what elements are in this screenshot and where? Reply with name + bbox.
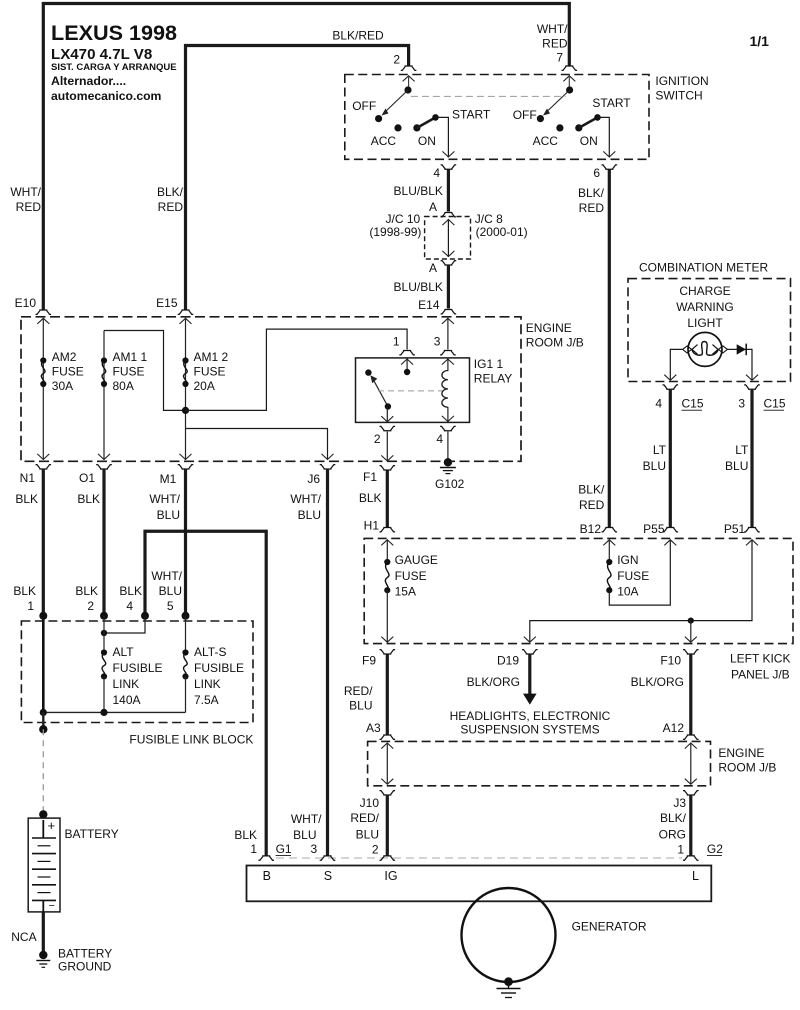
svg-text:GAUGE: GAUGE: [395, 553, 438, 567]
svg-text:J3: J3: [673, 796, 686, 810]
svg-text:80A: 80A: [113, 379, 134, 393]
svg-text:FUSE: FUSE: [395, 569, 427, 583]
svg-text:E10: E10: [15, 296, 37, 310]
svg-text:SWITCH: SWITCH: [655, 89, 702, 103]
svg-text:GENERATOR: GENERATOR: [572, 920, 647, 934]
svg-text:30A: 30A: [52, 379, 73, 393]
svg-text:BLK: BLK: [75, 584, 98, 598]
svg-text:J/C 10: J/C 10: [386, 212, 421, 226]
svg-text:J10: J10: [360, 796, 380, 810]
svg-text:P55: P55: [643, 522, 665, 536]
svg-text:ROOM J/B: ROOM J/B: [718, 761, 776, 775]
svg-text:P51: P51: [724, 522, 746, 536]
svg-text:S: S: [324, 869, 332, 883]
svg-text:A3: A3: [366, 721, 381, 735]
svg-text:4: 4: [433, 166, 440, 180]
svg-text:BLK/: BLK/: [578, 186, 605, 200]
svg-text:WHT/: WHT/: [10, 185, 41, 199]
svg-text:2: 2: [87, 599, 94, 613]
svg-text:NCA: NCA: [11, 930, 36, 944]
svg-text:WHT/: WHT/: [149, 492, 180, 506]
svg-text:1: 1: [27, 599, 34, 613]
svg-text:O1: O1: [79, 471, 95, 485]
svg-text:RED: RED: [16, 200, 42, 214]
svg-text:BATTERY: BATTERY: [65, 827, 119, 841]
svg-text:WARNING: WARNING: [676, 300, 734, 314]
svg-text:BATTERY: BATTERY: [58, 947, 112, 961]
svg-text:SIST. CARGA Y ARRANQUE: SIST. CARGA Y ARRANQUE: [51, 62, 177, 73]
svg-text:1: 1: [677, 843, 684, 857]
svg-text:OFF: OFF: [352, 99, 376, 113]
svg-text:RED: RED: [542, 37, 568, 51]
svg-text:+: +: [48, 818, 56, 833]
svg-text:BLU: BLU: [298, 508, 321, 522]
svg-text:RED: RED: [158, 200, 184, 214]
svg-text:AM1 2: AM1 2: [194, 350, 229, 364]
svg-text:WHT/: WHT/: [151, 569, 182, 583]
svg-text:HEADLIGHTS, ELECTRONIC: HEADLIGHTS, ELECTRONIC: [450, 709, 611, 723]
svg-text:IGN: IGN: [617, 553, 638, 567]
svg-text:ACC: ACC: [371, 134, 397, 148]
svg-text:RED/: RED/: [350, 811, 379, 825]
svg-text:A: A: [429, 261, 437, 275]
svg-text:WHT/: WHT/: [290, 492, 321, 506]
svg-text:IGNITION: IGNITION: [655, 74, 708, 88]
svg-text:1/1: 1/1: [750, 33, 770, 49]
svg-text:PANEL J/B: PANEL J/B: [731, 668, 790, 682]
svg-text:BLU: BLU: [159, 584, 182, 598]
svg-text:ON: ON: [580, 134, 598, 148]
svg-text:A: A: [429, 200, 437, 214]
svg-text:C15: C15: [682, 397, 704, 411]
svg-text:G1: G1: [276, 842, 292, 856]
svg-text:BLK/: BLK/: [660, 811, 687, 825]
svg-text:(2000-01): (2000-01): [476, 225, 528, 239]
svg-text:RED: RED: [579, 498, 605, 512]
svg-text:B12: B12: [580, 522, 602, 536]
svg-text:LEXUS 1998: LEXUS 1998: [51, 20, 177, 45]
svg-text:FUSIBLE: FUSIBLE: [194, 661, 244, 675]
svg-text:GROUND: GROUND: [58, 960, 112, 974]
svg-text:F10: F10: [660, 654, 681, 668]
svg-text:RELAY: RELAY: [474, 372, 512, 386]
svg-text:4: 4: [436, 432, 443, 446]
svg-text:3: 3: [311, 842, 318, 856]
svg-text:N1: N1: [20, 471, 36, 485]
svg-text:G2: G2: [707, 842, 723, 856]
svg-text:4: 4: [126, 599, 133, 613]
svg-text:2: 2: [372, 843, 379, 857]
svg-text:LT: LT: [735, 443, 749, 457]
svg-text:7.5A: 7.5A: [194, 693, 219, 707]
svg-text:E15: E15: [156, 296, 178, 310]
svg-text:BLU: BLU: [725, 459, 748, 473]
svg-text:2: 2: [374, 432, 381, 446]
svg-text:J/C 8: J/C 8: [475, 212, 503, 226]
svg-text:C15: C15: [764, 397, 786, 411]
svg-text:START: START: [592, 96, 631, 110]
svg-text:E14: E14: [418, 298, 440, 312]
svg-text:6: 6: [593, 166, 600, 180]
svg-text:WHT/: WHT/: [537, 22, 568, 36]
svg-text:LINK: LINK: [113, 677, 140, 691]
svg-text:L: L: [692, 869, 699, 883]
svg-text:1: 1: [393, 335, 400, 349]
svg-text:D19: D19: [497, 654, 519, 668]
svg-text:J6: J6: [307, 472, 320, 486]
svg-text:automecanico.com: automecanico.com: [51, 89, 162, 103]
svg-text:FUSE: FUSE: [617, 569, 649, 583]
svg-text:COMBINATION METER: COMBINATION METER: [639, 261, 768, 275]
svg-text:10A: 10A: [617, 585, 638, 599]
svg-text:LINK: LINK: [194, 677, 221, 691]
svg-text:FUSE: FUSE: [113, 365, 145, 379]
svg-text:140A: 140A: [113, 693, 141, 707]
svg-text:BLU: BLU: [349, 699, 372, 713]
svg-text:FUSE: FUSE: [52, 365, 84, 379]
svg-text:BLK: BLK: [15, 492, 38, 506]
svg-text:BLU: BLU: [157, 508, 180, 522]
svg-text:BLK: BLK: [234, 828, 257, 842]
svg-text:FUSE: FUSE: [194, 365, 226, 379]
svg-text:G102: G102: [435, 477, 465, 491]
svg-text:BLU: BLU: [356, 828, 379, 842]
svg-text:H1: H1: [364, 519, 380, 533]
svg-text:A12: A12: [663, 721, 685, 735]
svg-text:LIGHT: LIGHT: [687, 316, 723, 330]
svg-text:BLU: BLU: [643, 459, 666, 473]
svg-text:ENGINE: ENGINE: [526, 321, 572, 335]
svg-text:BLK/RED: BLK/RED: [332, 29, 384, 43]
svg-text:15A: 15A: [395, 585, 416, 599]
svg-text:M1: M1: [160, 472, 177, 486]
svg-text:OFF: OFF: [513, 108, 537, 122]
svg-text:7: 7: [556, 51, 563, 65]
svg-text:RED/: RED/: [344, 684, 373, 698]
svg-text:CHARGE: CHARGE: [679, 284, 730, 298]
svg-text:ENGINE: ENGINE: [718, 746, 764, 760]
svg-text:START: START: [452, 108, 491, 122]
svg-text:LT: LT: [653, 443, 667, 457]
svg-text:AM1 1: AM1 1: [113, 350, 148, 364]
svg-text:BLU: BLU: [293, 828, 316, 842]
svg-text:4: 4: [655, 397, 662, 411]
svg-text:ACC: ACC: [533, 134, 559, 148]
svg-text:BLK/: BLK/: [157, 185, 184, 199]
svg-text:ON: ON: [418, 134, 436, 148]
svg-text:BLU/BLK: BLU/BLK: [394, 280, 443, 294]
svg-text:3: 3: [738, 397, 745, 411]
svg-text:ALT-S: ALT-S: [194, 645, 226, 659]
svg-text:F1: F1: [363, 470, 377, 484]
svg-text:BLK: BLK: [119, 584, 142, 598]
svg-text:SUSPENSION SYSTEMS: SUSPENSION SYSTEMS: [460, 723, 599, 737]
svg-text:BLK/ORG: BLK/ORG: [631, 675, 684, 689]
svg-text:LX470 4.7L V8: LX470 4.7L V8: [51, 46, 152, 63]
svg-text:IG1 1: IG1 1: [474, 357, 504, 371]
svg-text:BLK: BLK: [359, 491, 382, 505]
svg-text:ORG: ORG: [659, 828, 686, 842]
svg-text:3: 3: [434, 335, 441, 349]
svg-text:AM2: AM2: [52, 350, 77, 364]
svg-text:1: 1: [250, 842, 257, 856]
svg-text:BLK: BLK: [77, 492, 100, 506]
svg-text:RED: RED: [579, 201, 605, 215]
svg-text:IG: IG: [384, 869, 397, 883]
svg-text:WHT/: WHT/: [291, 812, 322, 826]
svg-text:FUSIBLE: FUSIBLE: [113, 661, 163, 675]
svg-text:BLK/ORG: BLK/ORG: [467, 675, 520, 689]
svg-text:F9: F9: [362, 654, 376, 668]
svg-text:−: −: [49, 900, 55, 912]
svg-text:BLK/: BLK/: [578, 483, 605, 497]
svg-text:FUSIBLE LINK BLOCK: FUSIBLE LINK BLOCK: [129, 733, 253, 747]
svg-text:5: 5: [167, 599, 174, 613]
svg-text:ROOM J/B: ROOM J/B: [526, 336, 584, 350]
svg-text:BLK: BLK: [13, 584, 36, 598]
svg-text:ALT: ALT: [113, 645, 135, 659]
svg-text:BLU/BLK: BLU/BLK: [394, 184, 443, 198]
svg-text:20A: 20A: [194, 379, 215, 393]
svg-text:2: 2: [393, 53, 400, 67]
svg-text:(1998-99): (1998-99): [369, 225, 421, 239]
svg-text:Alternador....: Alternador....: [51, 74, 126, 88]
svg-text:B: B: [263, 869, 271, 883]
svg-text:LEFT KICK: LEFT KICK: [730, 652, 790, 666]
